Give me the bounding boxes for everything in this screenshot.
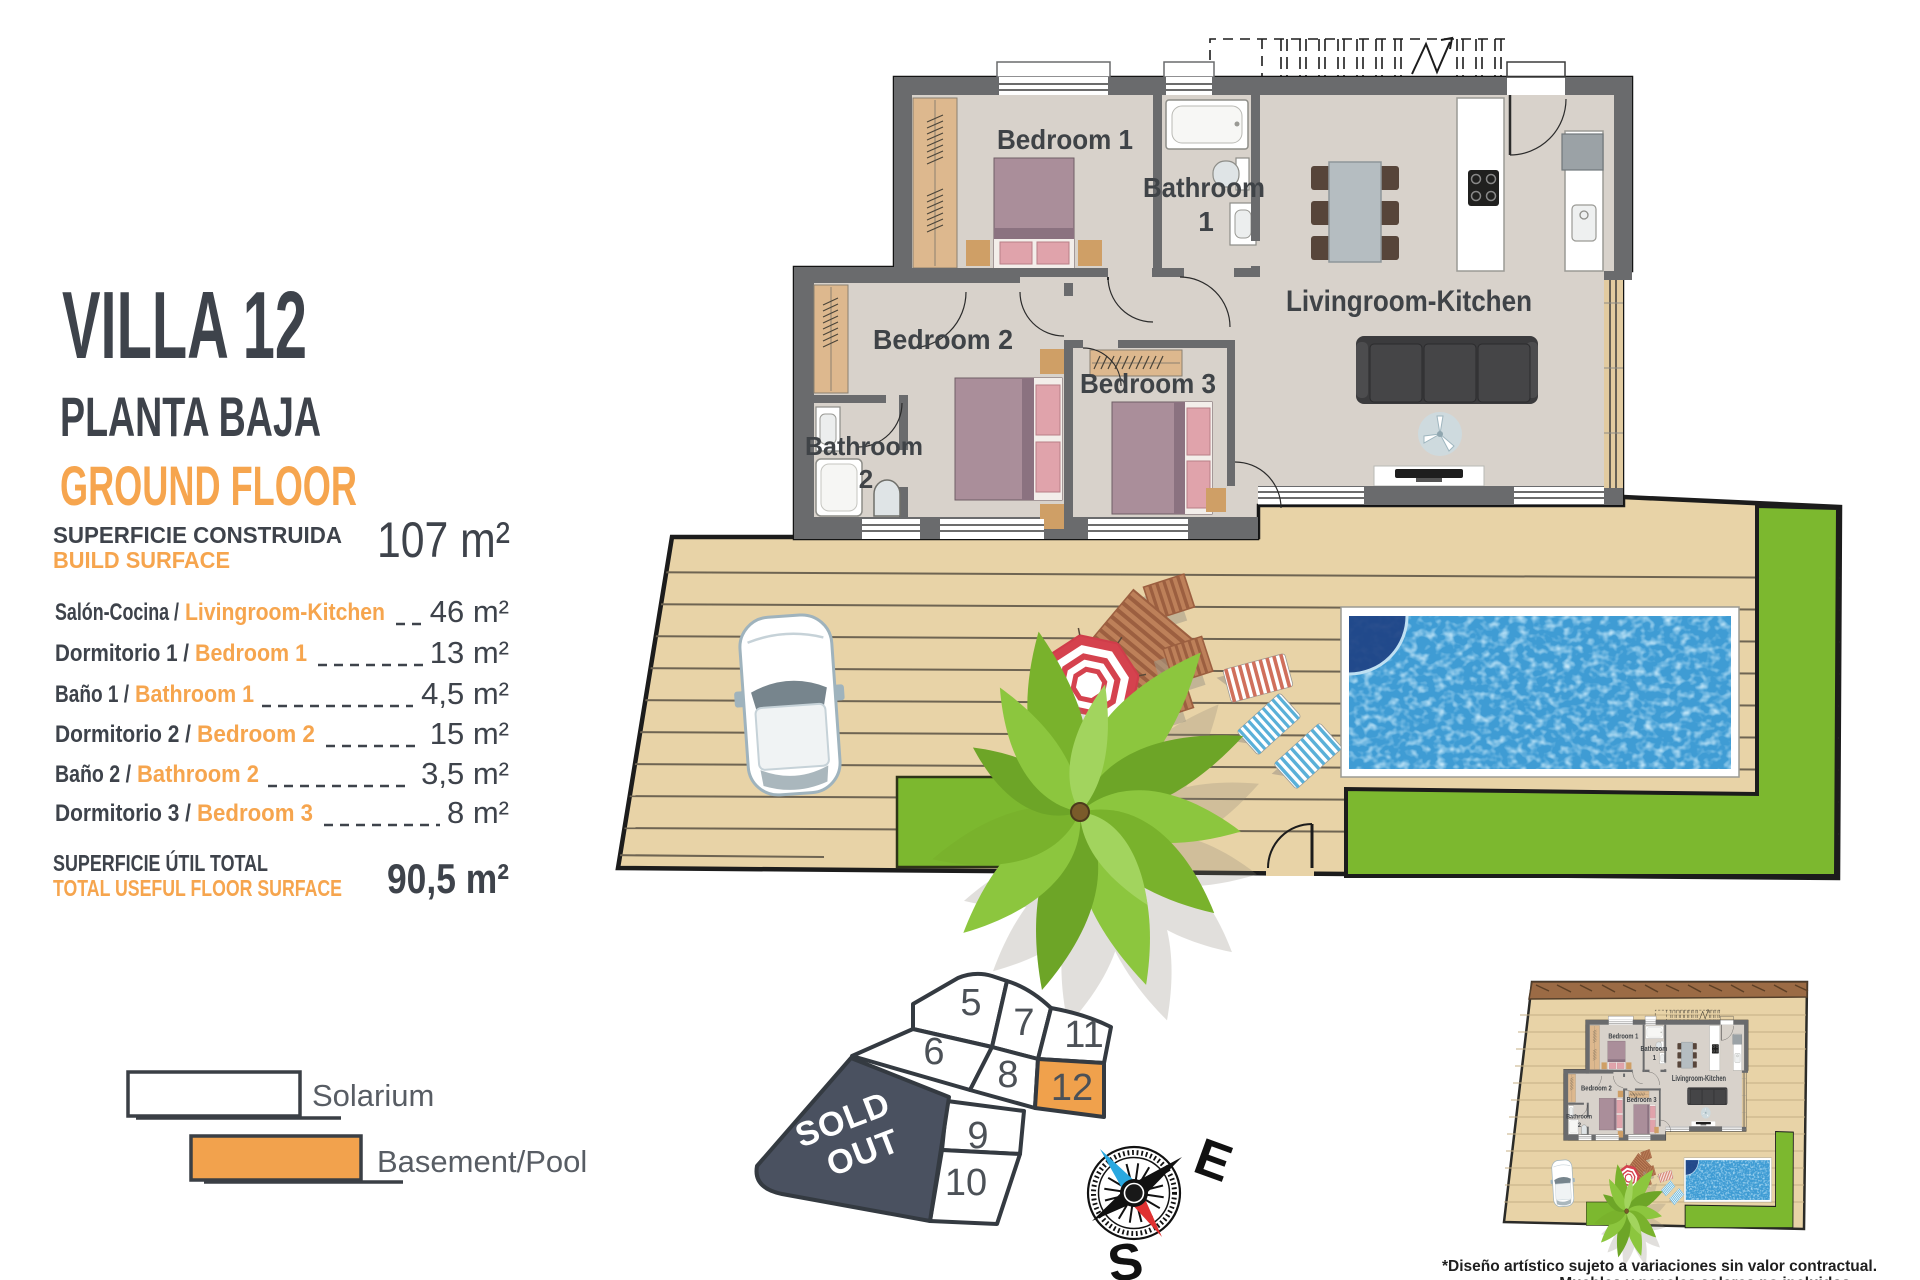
svg-text:Bathroom: Bathroom bbox=[805, 431, 923, 461]
svg-text:Solarium: Solarium bbox=[312, 1078, 434, 1113]
svg-text:Bedroom 3: Bedroom 3 bbox=[197, 800, 313, 827]
svg-text:Bathroom 2: Bathroom 2 bbox=[137, 761, 259, 788]
svg-text:Bedroom 2: Bedroom 2 bbox=[873, 324, 1013, 355]
svg-text:Livingroom-Kitchen: Livingroom-Kitchen bbox=[185, 599, 385, 626]
svg-text:*Diseño artístico sujeto a var: *Diseño artístico sujeto a variaciones s… bbox=[1442, 1258, 1877, 1275]
svg-text:Baño 2 /: Baño 2 / bbox=[55, 761, 131, 788]
svg-text:46 m²: 46 m² bbox=[430, 594, 509, 629]
svg-text:Muebles y paneles solares no i: Muebles y paneles solares no incluidos. bbox=[1559, 1275, 1854, 1280]
svg-text:Bedroom 1: Bedroom 1 bbox=[997, 124, 1133, 155]
svg-text:6: 6 bbox=[923, 1031, 944, 1073]
svg-text:4,5 m²: 4,5 m² bbox=[421, 676, 509, 711]
svg-text:PLANTA BAJA: PLANTA BAJA bbox=[60, 385, 321, 448]
svg-text:90,5 m²: 90,5 m² bbox=[387, 855, 509, 902]
svg-text:Salón-Cocina /: Salón-Cocina / bbox=[55, 599, 179, 626]
svg-text:Bedroom 2: Bedroom 2 bbox=[197, 721, 315, 748]
svg-text:107 m²: 107 m² bbox=[377, 512, 510, 568]
svg-text:VILLA 12: VILLA 12 bbox=[62, 272, 307, 379]
svg-text:Basement/Pool: Basement/Pool bbox=[377, 1144, 587, 1179]
svg-text:5: 5 bbox=[960, 982, 981, 1024]
svg-text:SUPERFICIE ÚTIL TOTAL: SUPERFICIE ÚTIL TOTAL bbox=[53, 849, 268, 876]
svg-text:Dormitorio 2 /: Dormitorio 2 / bbox=[55, 721, 191, 748]
svg-text:2: 2 bbox=[859, 464, 873, 494]
svg-text:Bedroom 1: Bedroom 1 bbox=[195, 640, 307, 667]
svg-text:Livingroom-Kitchen: Livingroom-Kitchen bbox=[1286, 285, 1532, 318]
svg-text:13 m²: 13 m² bbox=[430, 635, 509, 670]
svg-text:Bedroom 3: Bedroom 3 bbox=[1080, 368, 1216, 399]
svg-text:8: 8 bbox=[997, 1054, 1018, 1096]
svg-text:Dormitorio 3 /: Dormitorio 3 / bbox=[55, 800, 191, 827]
svg-text:11: 11 bbox=[1064, 1014, 1103, 1056]
svg-text:15 m²: 15 m² bbox=[430, 716, 509, 751]
svg-text:3,5 m²: 3,5 m² bbox=[421, 756, 509, 791]
svg-text:12: 12 bbox=[1051, 1067, 1093, 1109]
svg-text:SUPERFICIE CONSTRUIDA: SUPERFICIE CONSTRUIDA bbox=[53, 522, 342, 548]
svg-text:Baño 1 /: Baño 1 / bbox=[55, 681, 129, 708]
svg-text:7: 7 bbox=[1013, 1002, 1034, 1044]
svg-text:1: 1 bbox=[1198, 206, 1214, 237]
svg-text:GROUND FLOOR: GROUND FLOOR bbox=[60, 454, 357, 517]
svg-text:8 m²: 8 m² bbox=[447, 795, 509, 830]
svg-text:BUILD SURFACE: BUILD SURFACE bbox=[53, 547, 230, 573]
svg-text:10: 10 bbox=[945, 1162, 987, 1204]
svg-text:9: 9 bbox=[967, 1115, 988, 1157]
svg-text:Bathroom 1: Bathroom 1 bbox=[135, 681, 254, 708]
svg-text:TOTAL USEFUL FLOOR SURFACE: TOTAL USEFUL FLOOR SURFACE bbox=[53, 875, 342, 901]
svg-text:Bathroom: Bathroom bbox=[1143, 172, 1265, 203]
svg-text:Dormitorio 1 /: Dormitorio 1 / bbox=[55, 640, 189, 667]
